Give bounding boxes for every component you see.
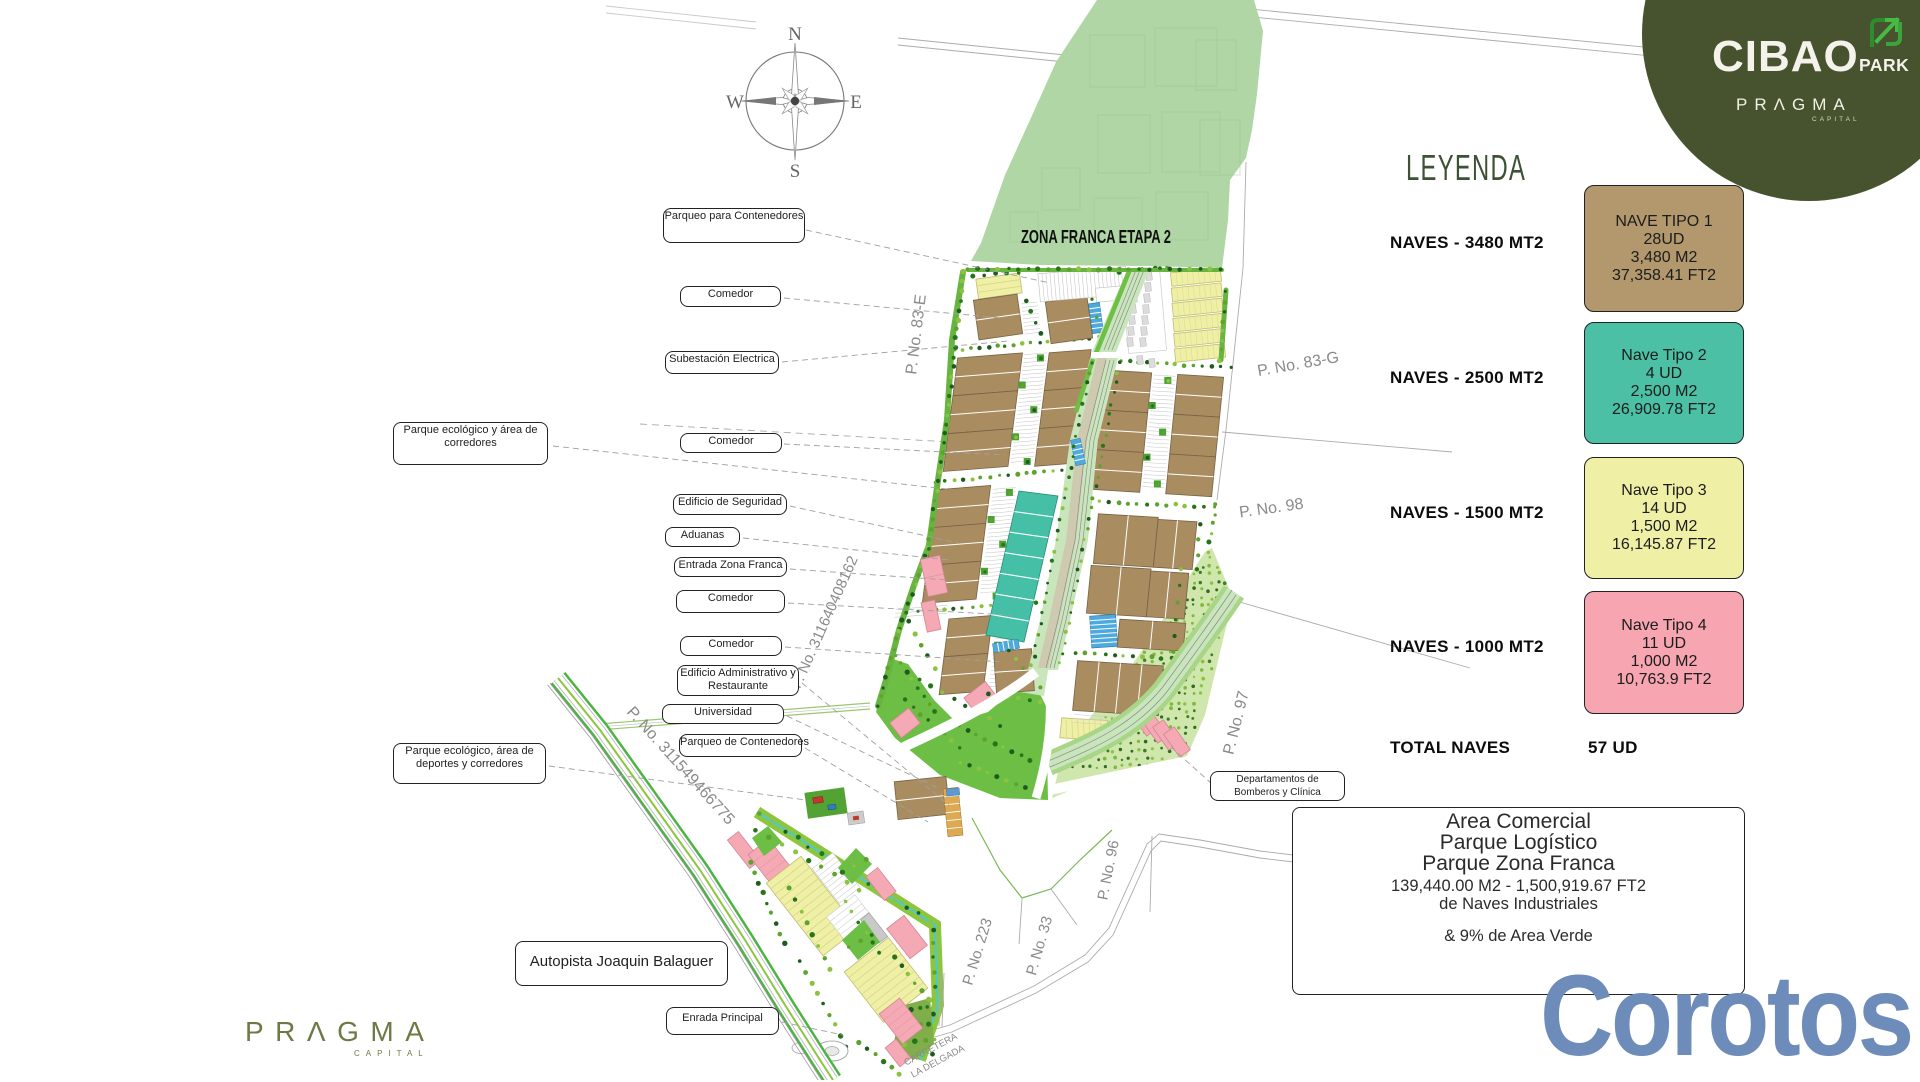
svg-text:CIBAO: CIBAO (1712, 32, 1859, 81)
svg-text:CAPITAL: CAPITAL (1812, 116, 1860, 123)
svg-text:PARK: PARK (1859, 55, 1909, 75)
svg-text:PRΛGMA: PRΛGMA (1736, 95, 1852, 114)
